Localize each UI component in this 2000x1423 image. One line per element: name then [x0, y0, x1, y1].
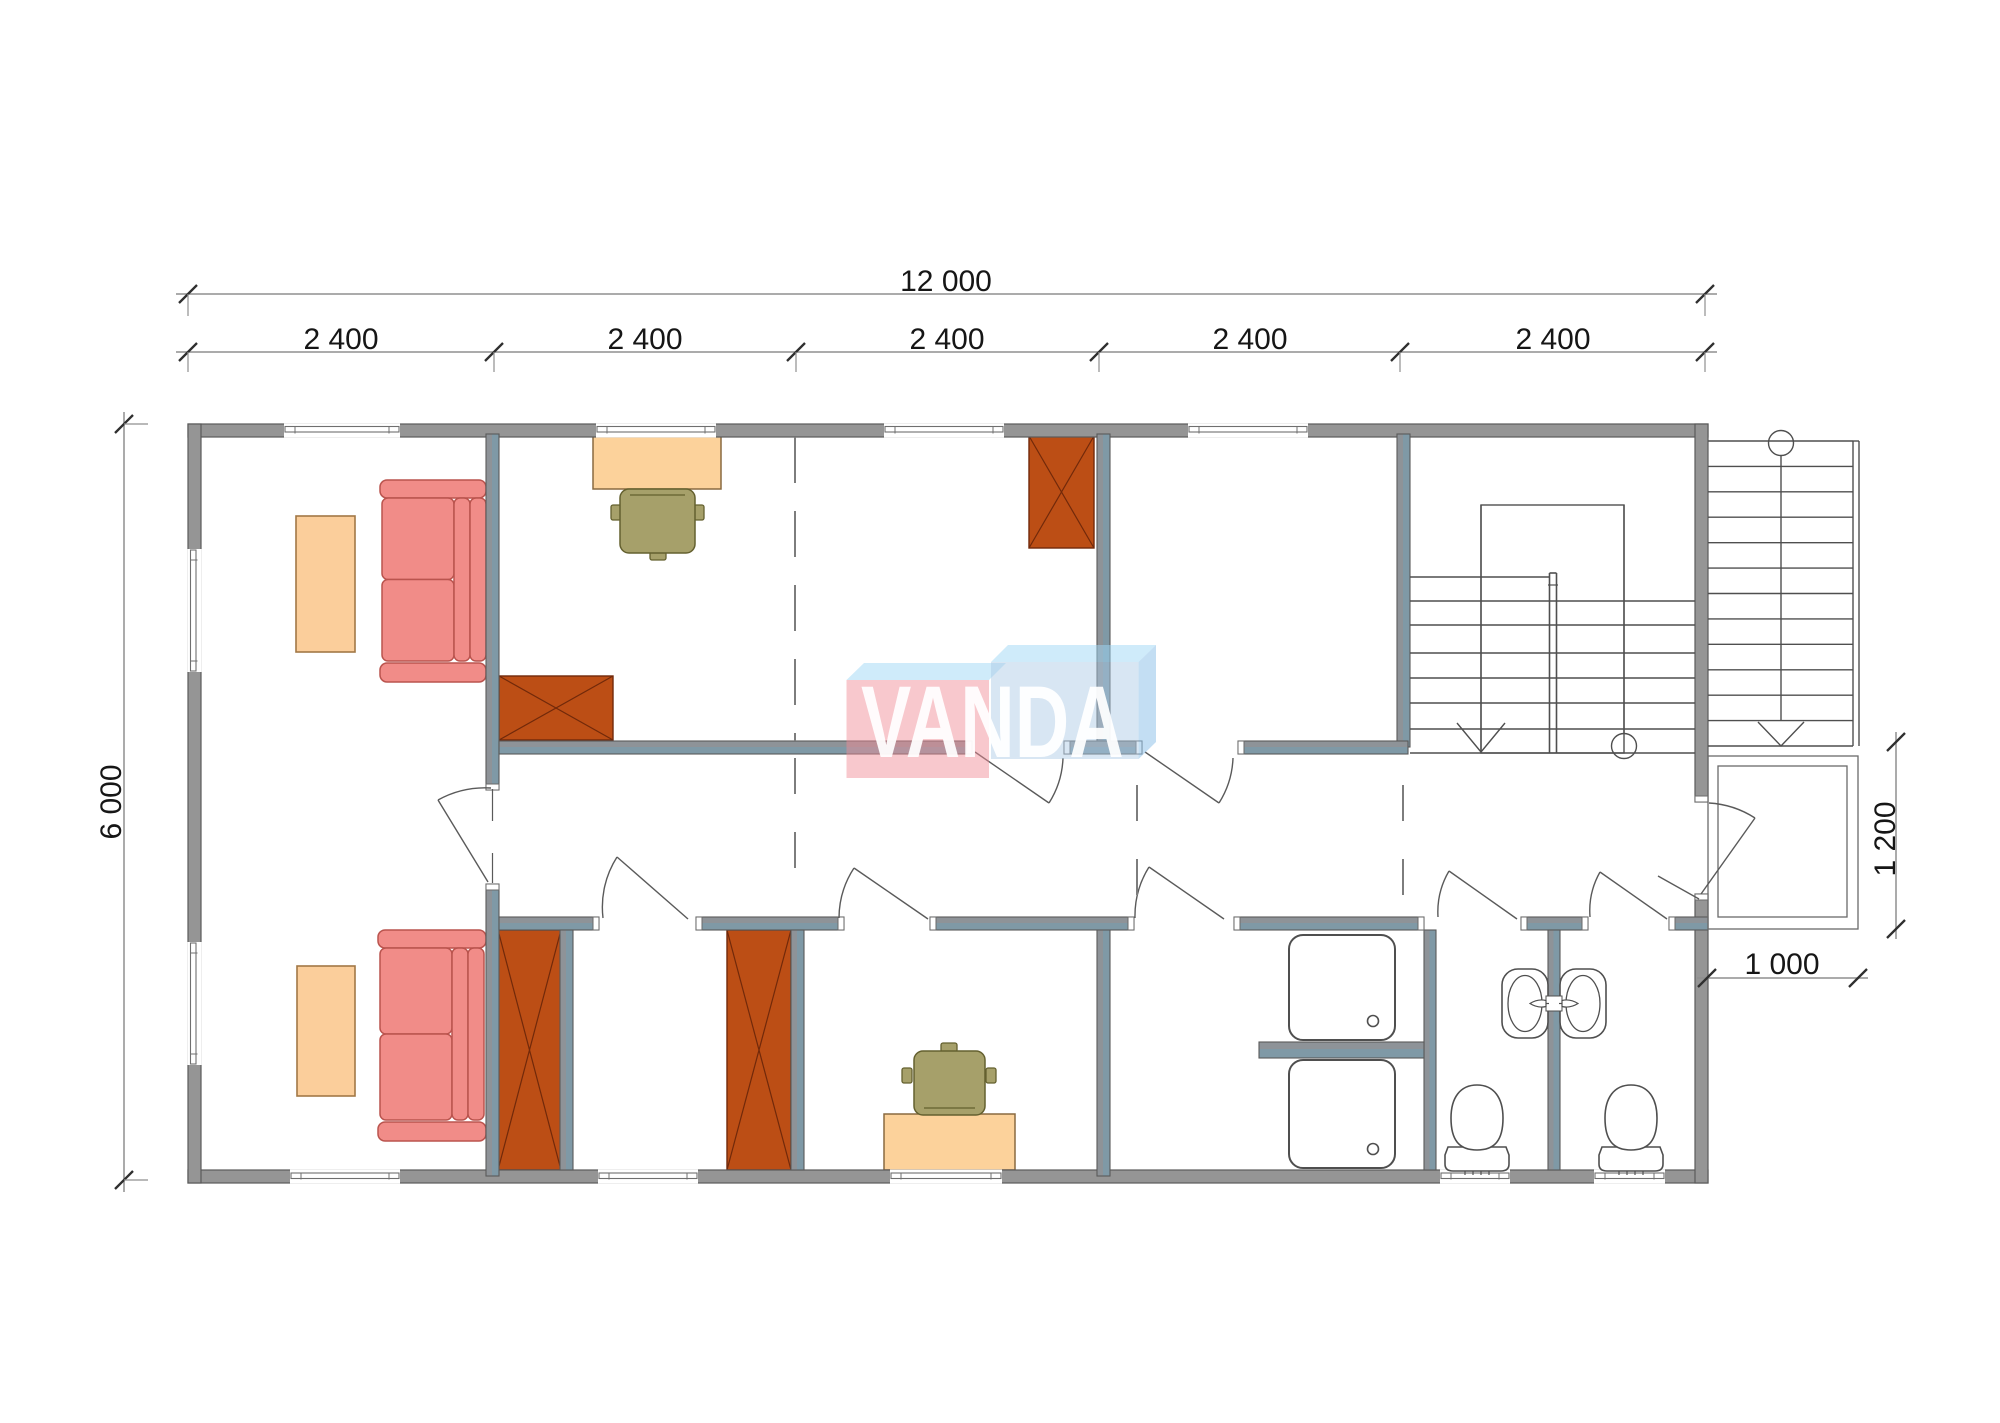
svg-text:2 400: 2 400 [909, 323, 984, 356]
svg-text:2 400: 2 400 [1212, 323, 1287, 356]
svg-text:2 400: 2 400 [1515, 323, 1590, 356]
svg-text:2 400: 2 400 [607, 323, 682, 356]
svg-text:1 000: 1 000 [1744, 948, 1819, 981]
svg-text:12 000: 12 000 [900, 265, 992, 298]
svg-text:2 400: 2 400 [303, 323, 378, 356]
svg-text:1 200: 1 200 [1869, 801, 1902, 876]
svg-text:6 000: 6 000 [95, 764, 128, 839]
svg-text:VANDA: VANDA [861, 666, 1124, 780]
